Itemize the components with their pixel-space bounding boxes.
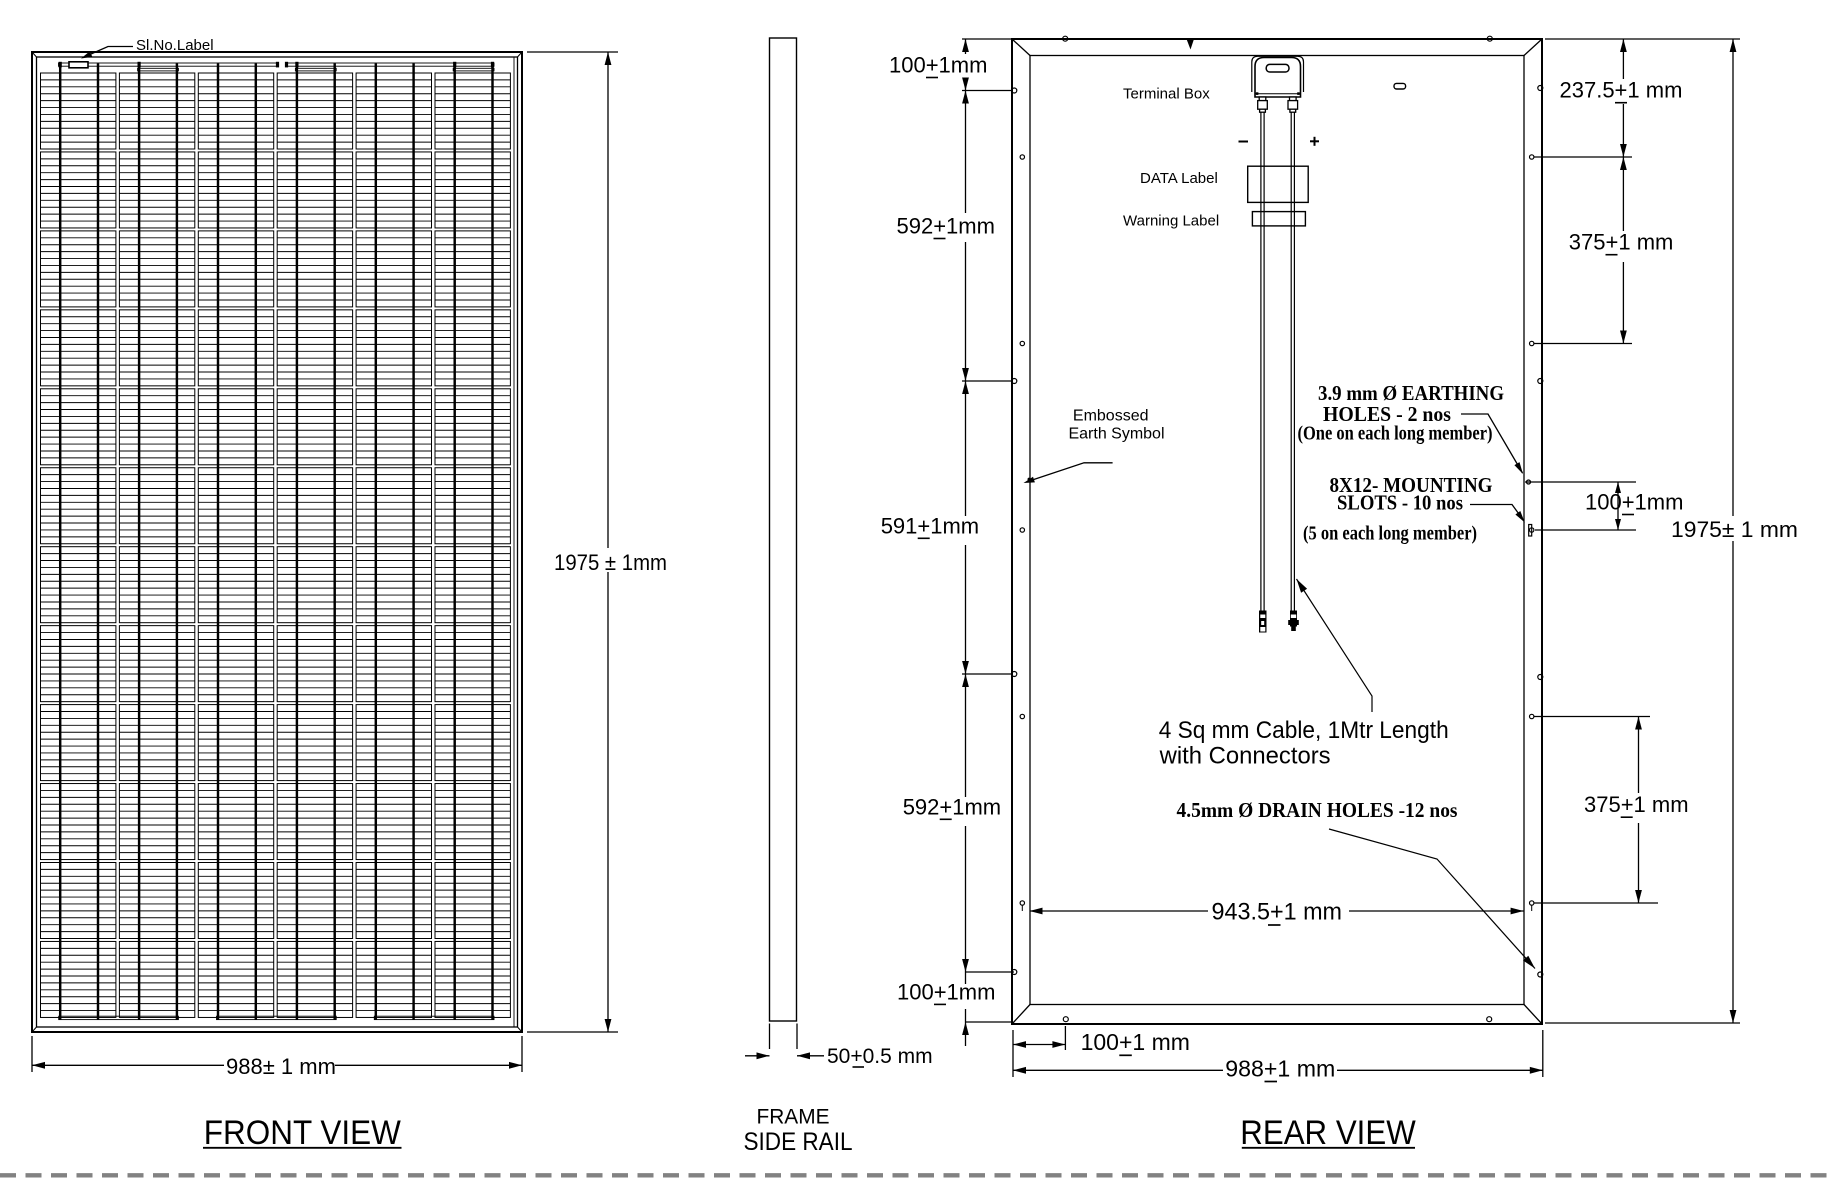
svg-text:Embossed: Embossed [1073,408,1149,425]
svg-text:100+1mm: 100+1mm [889,53,987,78]
svg-text:REAR VIEW: REAR VIEW [1240,1114,1416,1152]
svg-text:100+1 mm: 100+1 mm [1081,1029,1190,1055]
svg-text:(5 on each long member): (5 on each long member) [1303,523,1477,545]
svg-text:592+1mm: 592+1mm [897,214,995,239]
svg-text:DATA Label: DATA Label [1140,170,1218,187]
svg-text:SIDE RAIL: SIDE RAIL [744,1128,853,1156]
svg-text:50+0.5 mm: 50+0.5 mm [827,1045,933,1068]
svg-text:375+1 mm: 375+1 mm [1584,792,1689,817]
svg-text:1975± 1 mm: 1975± 1 mm [1671,517,1798,542]
svg-text:591+1mm: 591+1mm [881,513,979,538]
svg-text:592+1mm: 592+1mm [903,794,1001,819]
svg-text:100+1mm: 100+1mm [897,979,995,1004]
svg-text:237.5+1 mm: 237.5+1 mm [1560,78,1683,103]
svg-text:SLOTS - 10 nos: SLOTS - 10 nos [1337,490,1463,514]
svg-text:FRAME: FRAME [757,1106,830,1129]
svg-text:Warning Label: Warning Label [1123,213,1219,230]
svg-text:4.5mm Ø DRAIN HOLES -12 nos: 4.5mm Ø DRAIN HOLES -12 nos [1177,798,1458,822]
svg-text:Sl.No.Label: Sl.No.Label [136,37,214,54]
svg-text:1975 ± 1mm: 1975 ± 1mm [554,550,667,575]
svg-text:943.5+1 mm: 943.5+1 mm [1212,899,1343,926]
svg-text:988± 1 mm: 988± 1 mm [226,1054,336,1079]
svg-text:Terminal Box: Terminal Box [1123,86,1210,103]
svg-text:FRONT VIEW: FRONT VIEW [204,1114,401,1152]
svg-text:375+1 mm: 375+1 mm [1569,230,1674,255]
svg-text:with Connectors: with Connectors [1159,742,1331,769]
svg-text:Earth Symbol: Earth Symbol [1068,426,1164,443]
svg-text:988+1 mm: 988+1 mm [1225,1056,1335,1082]
svg-text:4 Sq mm Cable, 1Mtr Length: 4 Sq mm Cable, 1Mtr Length [1159,717,1449,744]
svg-text:(One on each long member): (One on each long member) [1298,423,1493,445]
svg-text:100+1mm: 100+1mm [1585,490,1683,515]
